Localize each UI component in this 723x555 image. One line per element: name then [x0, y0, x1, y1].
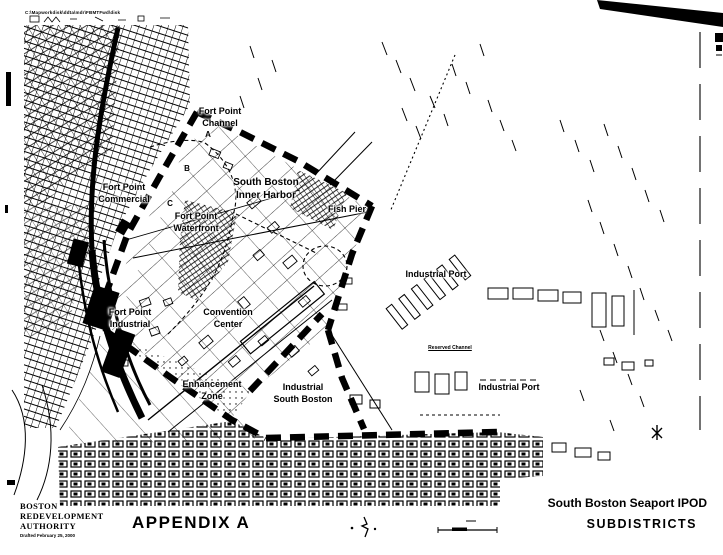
label-fort-point-industrial: Fort Point Industrial [104, 307, 156, 330]
label-fort-point-commercial: Fort Point Commercial [96, 182, 152, 205]
label-enhancement-zone: Enhancement Zone [178, 379, 246, 402]
agency-line-2: REDEVELOPMENT [20, 511, 104, 521]
label-industrial-port-north: Industrial Port [404, 269, 468, 281]
label-fish-pier: Fish Pier [324, 204, 370, 216]
north-arrow-icon [351, 517, 376, 537]
marker-b: B [181, 164, 193, 174]
map-edge-marks [597, 0, 723, 440]
agency-line-3: AUTHORITY [20, 521, 104, 531]
label-reserved-channel: Reserved Channel [424, 345, 476, 352]
label-fort-point-channel: Fort Point Channel [196, 106, 244, 129]
label-industrial-south-boston: Industrial South Boston [268, 382, 338, 405]
marker-a: A [202, 130, 214, 140]
agency-line-1: BOSTON [20, 501, 104, 511]
label-convention-center: Convention Center [200, 307, 256, 330]
star-mark [652, 425, 662, 440]
marker-c: C [164, 199, 176, 209]
map-artwork [0, 0, 723, 555]
scanned-map-page: C:\Mapworkdisk\ddta\mdr\FBMTFwd\disk For… [0, 0, 723, 555]
scale-bar [438, 521, 497, 533]
top-legend-marks [30, 16, 170, 22]
file-path-note: C:\Mapworkdisk\ddta\mdr\FBMTFwd\disk [25, 10, 120, 15]
agency-name: BOSTON REDEVELOPMENT AUTHORITY Drafted F… [20, 501, 104, 538]
map-title: South Boston Seaport IPOD [548, 496, 707, 510]
label-fort-point-waterfront: Fort Point Waterfront [168, 211, 224, 234]
label-industrial-port-south: Industrial Port [476, 382, 542, 394]
map-subtitle: SUBDISTRICTS [587, 517, 697, 531]
drafted-note: Drafted February 25, 2000 [20, 533, 104, 538]
appendix-title: APPENDIX A [132, 513, 250, 533]
label-south-boston-inner-harbor: South Boston Inner Harbor [228, 176, 304, 202]
